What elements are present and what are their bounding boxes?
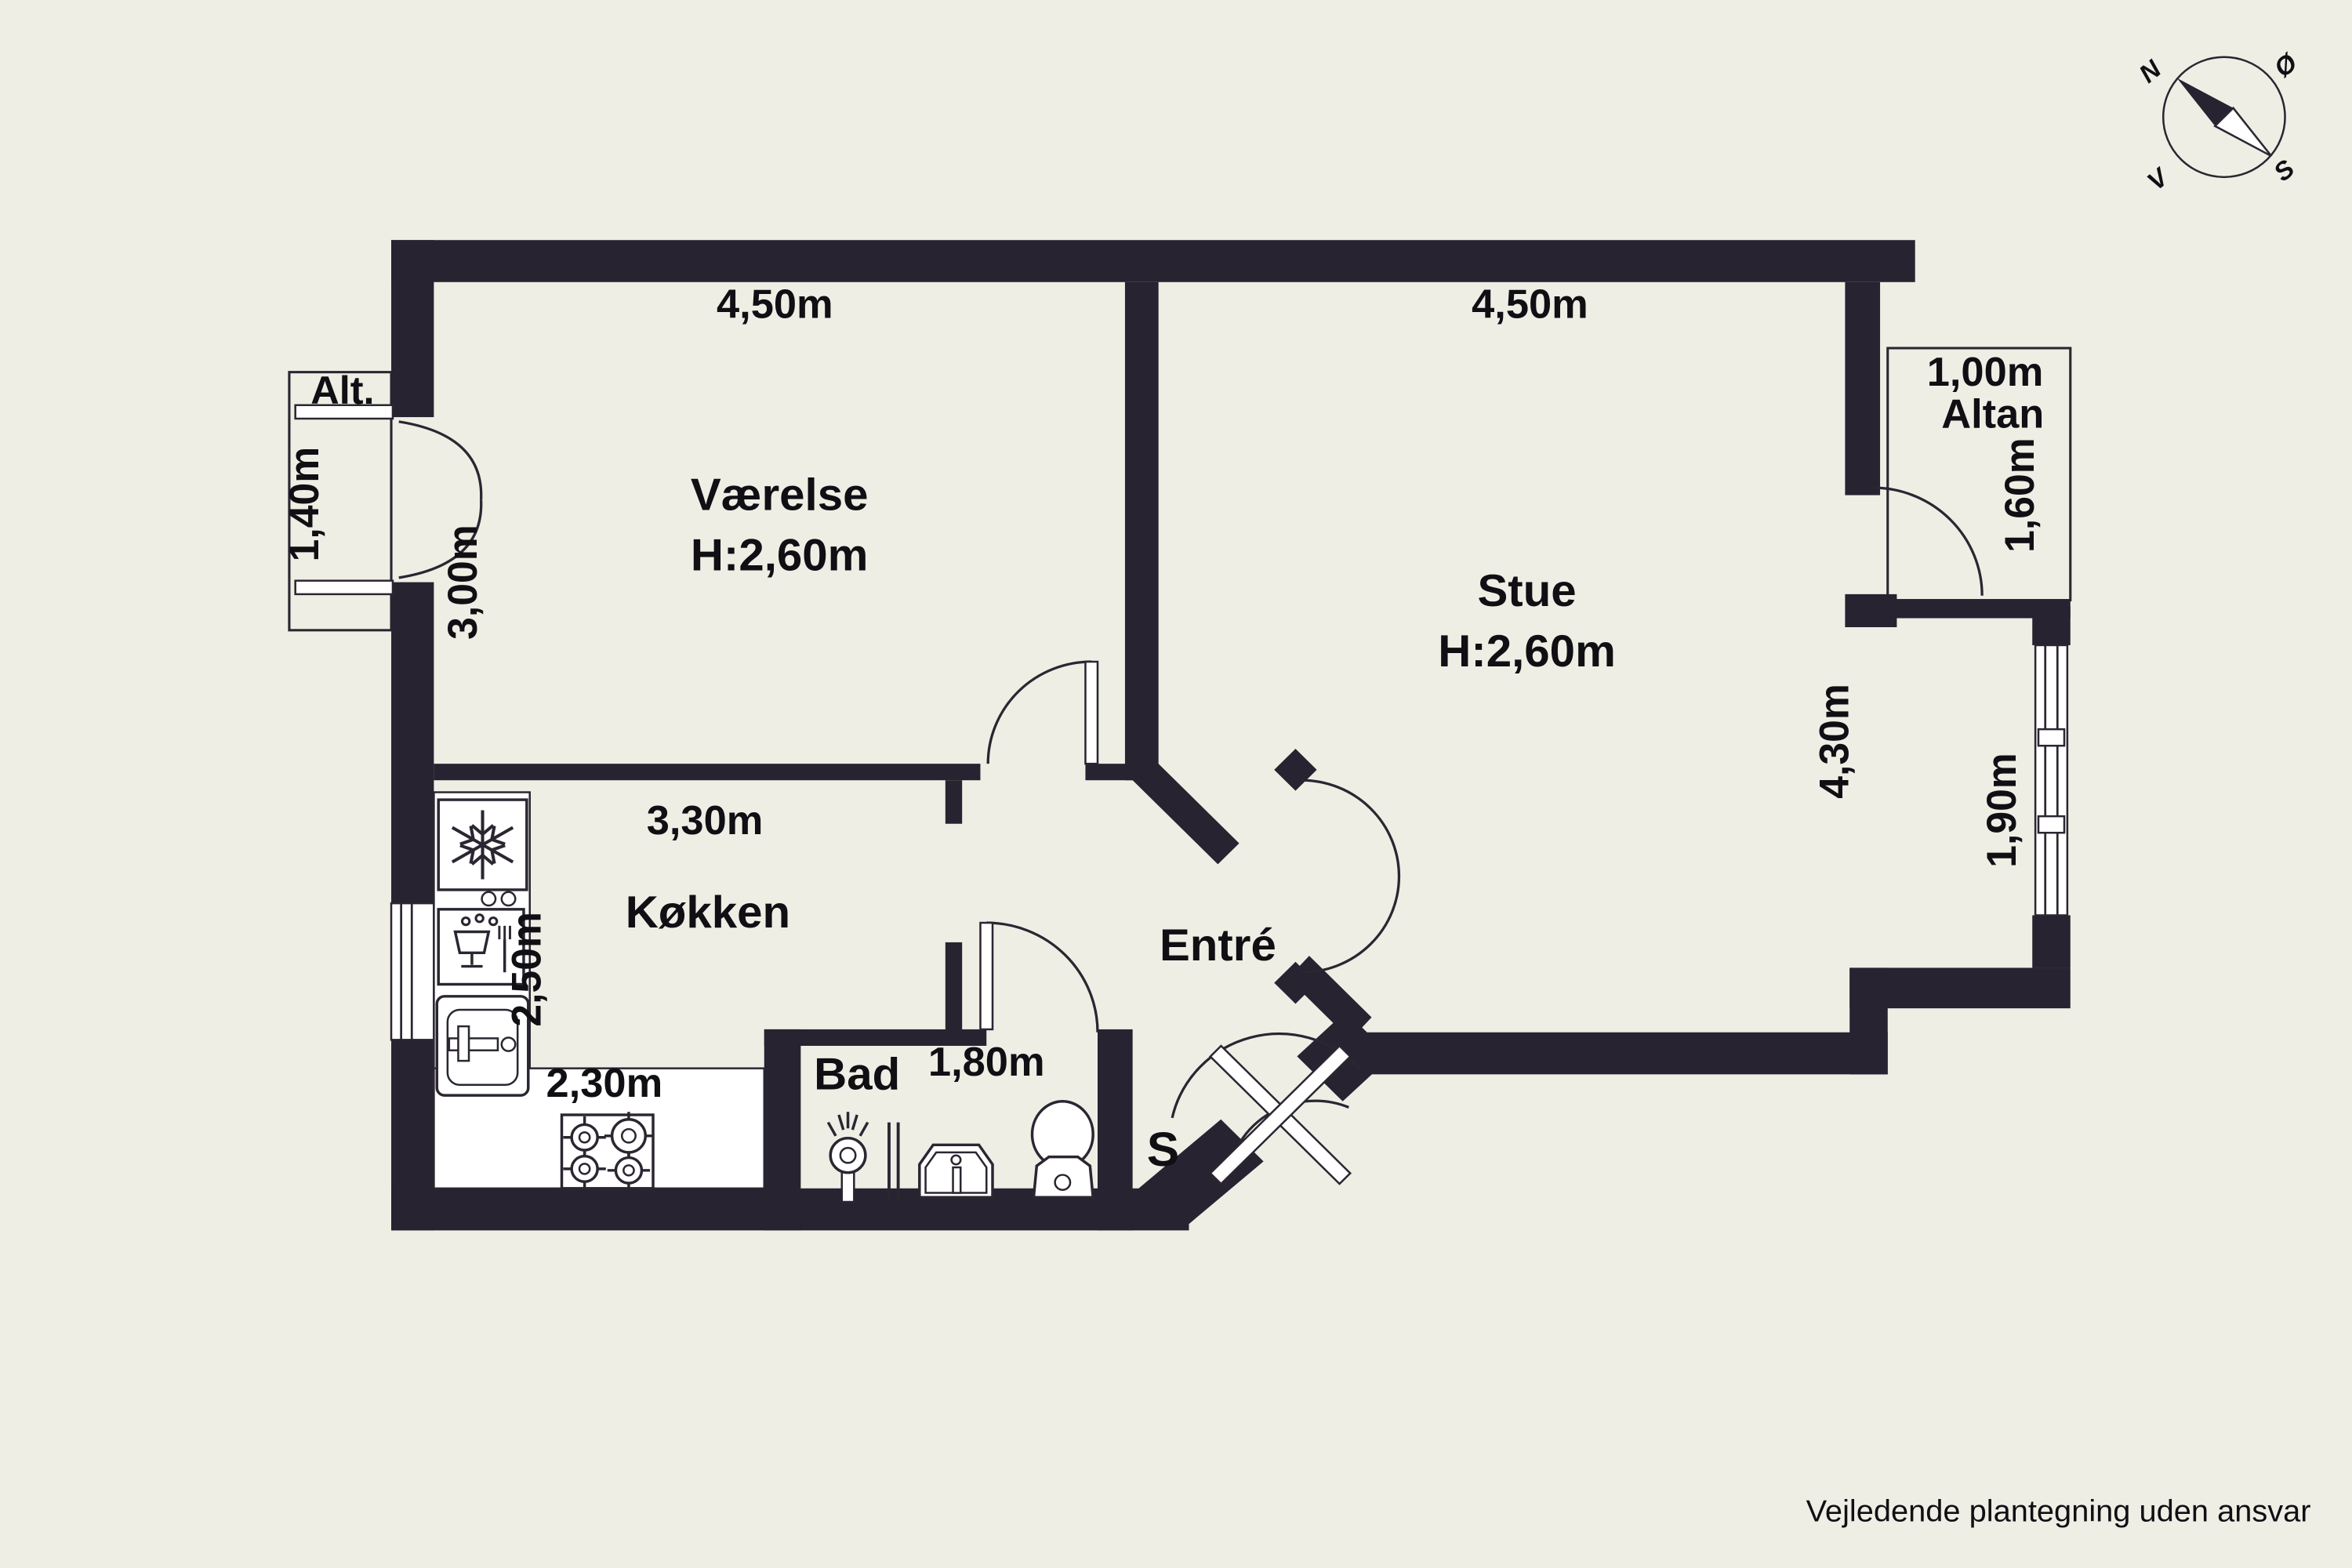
stue-width-label: 4,50m (1472, 282, 1588, 328)
bathroom-fixtures (828, 1102, 1093, 1202)
entre-name-label: Entré (1160, 920, 1276, 971)
stue-depth-label: 4,30m (1812, 684, 1857, 799)
vaerelse-name-label: Værelse (691, 470, 869, 521)
kokken-width-label: 3,30m (647, 798, 764, 844)
stue-window (2035, 645, 2067, 915)
wall-left-upper (391, 240, 434, 417)
compass-north-label: N (2133, 53, 2167, 88)
compass-west-label: V (2141, 162, 2175, 196)
floorplan-page: 4,50m 4,50m Værelse H:2,60m Stue H:2,60m… (0, 0, 2352, 1568)
door-hinge-block-upper (1274, 749, 1316, 791)
closet-label: S (1147, 1123, 1179, 1176)
stove-icon (562, 1112, 654, 1189)
wall-window-stub-top (2032, 606, 2071, 645)
door-leaf (1085, 662, 1098, 764)
door-leaf (980, 923, 993, 1029)
kokken-counter-label: 2,30m (546, 1061, 663, 1106)
compass-east-label: Ø (2268, 47, 2303, 82)
bad-door (980, 923, 1098, 1033)
altan-door (1872, 488, 1982, 596)
wall-window-stub-bottom (2032, 915, 2071, 967)
stue-name-label: Stue (1477, 567, 1576, 617)
bad-name-label: Bad (814, 1050, 900, 1100)
wall-bad-right (1098, 1029, 1133, 1230)
wall-stue-bottom (1353, 1033, 1888, 1075)
altan-depth-label: 1,00m (1927, 350, 2044, 395)
disclaimer-text: Vejledende plantegning uden ansvar (1806, 1494, 2311, 1529)
wall-entre-diagonal-a (1130, 757, 1240, 865)
vaerelse-ceiling-label: H:2,60m (691, 531, 869, 581)
stue-ceiling-label: H:2,60m (1438, 626, 1616, 677)
wall-bad-left (764, 1029, 801, 1230)
toilet-icon (1033, 1102, 1094, 1197)
bad-width-label: 1,80m (928, 1040, 1045, 1086)
labels: 4,50m 4,50m Værelse H:2,60m Stue H:2,60m… (281, 282, 2310, 1529)
wall-kokken-entre-stub-lower (946, 942, 962, 1036)
vaerelse-depth-label: 3,00m (440, 524, 485, 640)
tap-knob (502, 892, 515, 906)
door-arc (988, 662, 1091, 764)
door-arc (986, 923, 1098, 1033)
altan-label: Altan (1941, 392, 2044, 437)
kitchen-window (391, 903, 434, 1040)
kokken-depth-label: 2,50m (504, 912, 550, 1027)
wall-left-middle (391, 583, 434, 904)
floorplan-drawing: 4,50m 4,50m Værelse H:2,60m Stue H:2,60m… (0, 0, 2352, 1568)
room-entre (975, 780, 1294, 1035)
alt-door-width-label: 1,40m (281, 447, 327, 562)
compass-rose-icon: N Ø S V (2133, 47, 2303, 196)
vaerelse-width-label: 4,50m (717, 282, 833, 328)
vaerelse-door (988, 662, 1098, 764)
door-arc (1301, 780, 1399, 972)
kokken-name-label: Køkken (626, 887, 790, 938)
tap-knob (482, 892, 495, 906)
entre-stue-door (1301, 780, 1399, 972)
alt-label: Alt. (310, 368, 374, 412)
room-vaerelse (434, 282, 1125, 764)
compass-south-label: S (2268, 154, 2300, 187)
door-arc (1872, 488, 1982, 596)
stue-window-width-label: 1,90m (1980, 753, 2025, 868)
faucet-icon (449, 1038, 498, 1050)
bathroom-sink-icon (920, 1145, 993, 1197)
fridge-icon (438, 800, 527, 890)
wall-kokken-top (434, 764, 980, 780)
wall-stue-altan (1845, 282, 1880, 495)
alt-door-leaf-bottom (296, 581, 393, 594)
door-arc (399, 422, 481, 500)
altan-door-width-label: 1,60m (1998, 437, 2043, 553)
wall-top (391, 240, 1915, 282)
wall-vaerelse-stue-divider (1125, 282, 1159, 780)
kitchen-fixtures (434, 793, 764, 1189)
wall-kokken-entre-stub-upper (946, 780, 962, 824)
